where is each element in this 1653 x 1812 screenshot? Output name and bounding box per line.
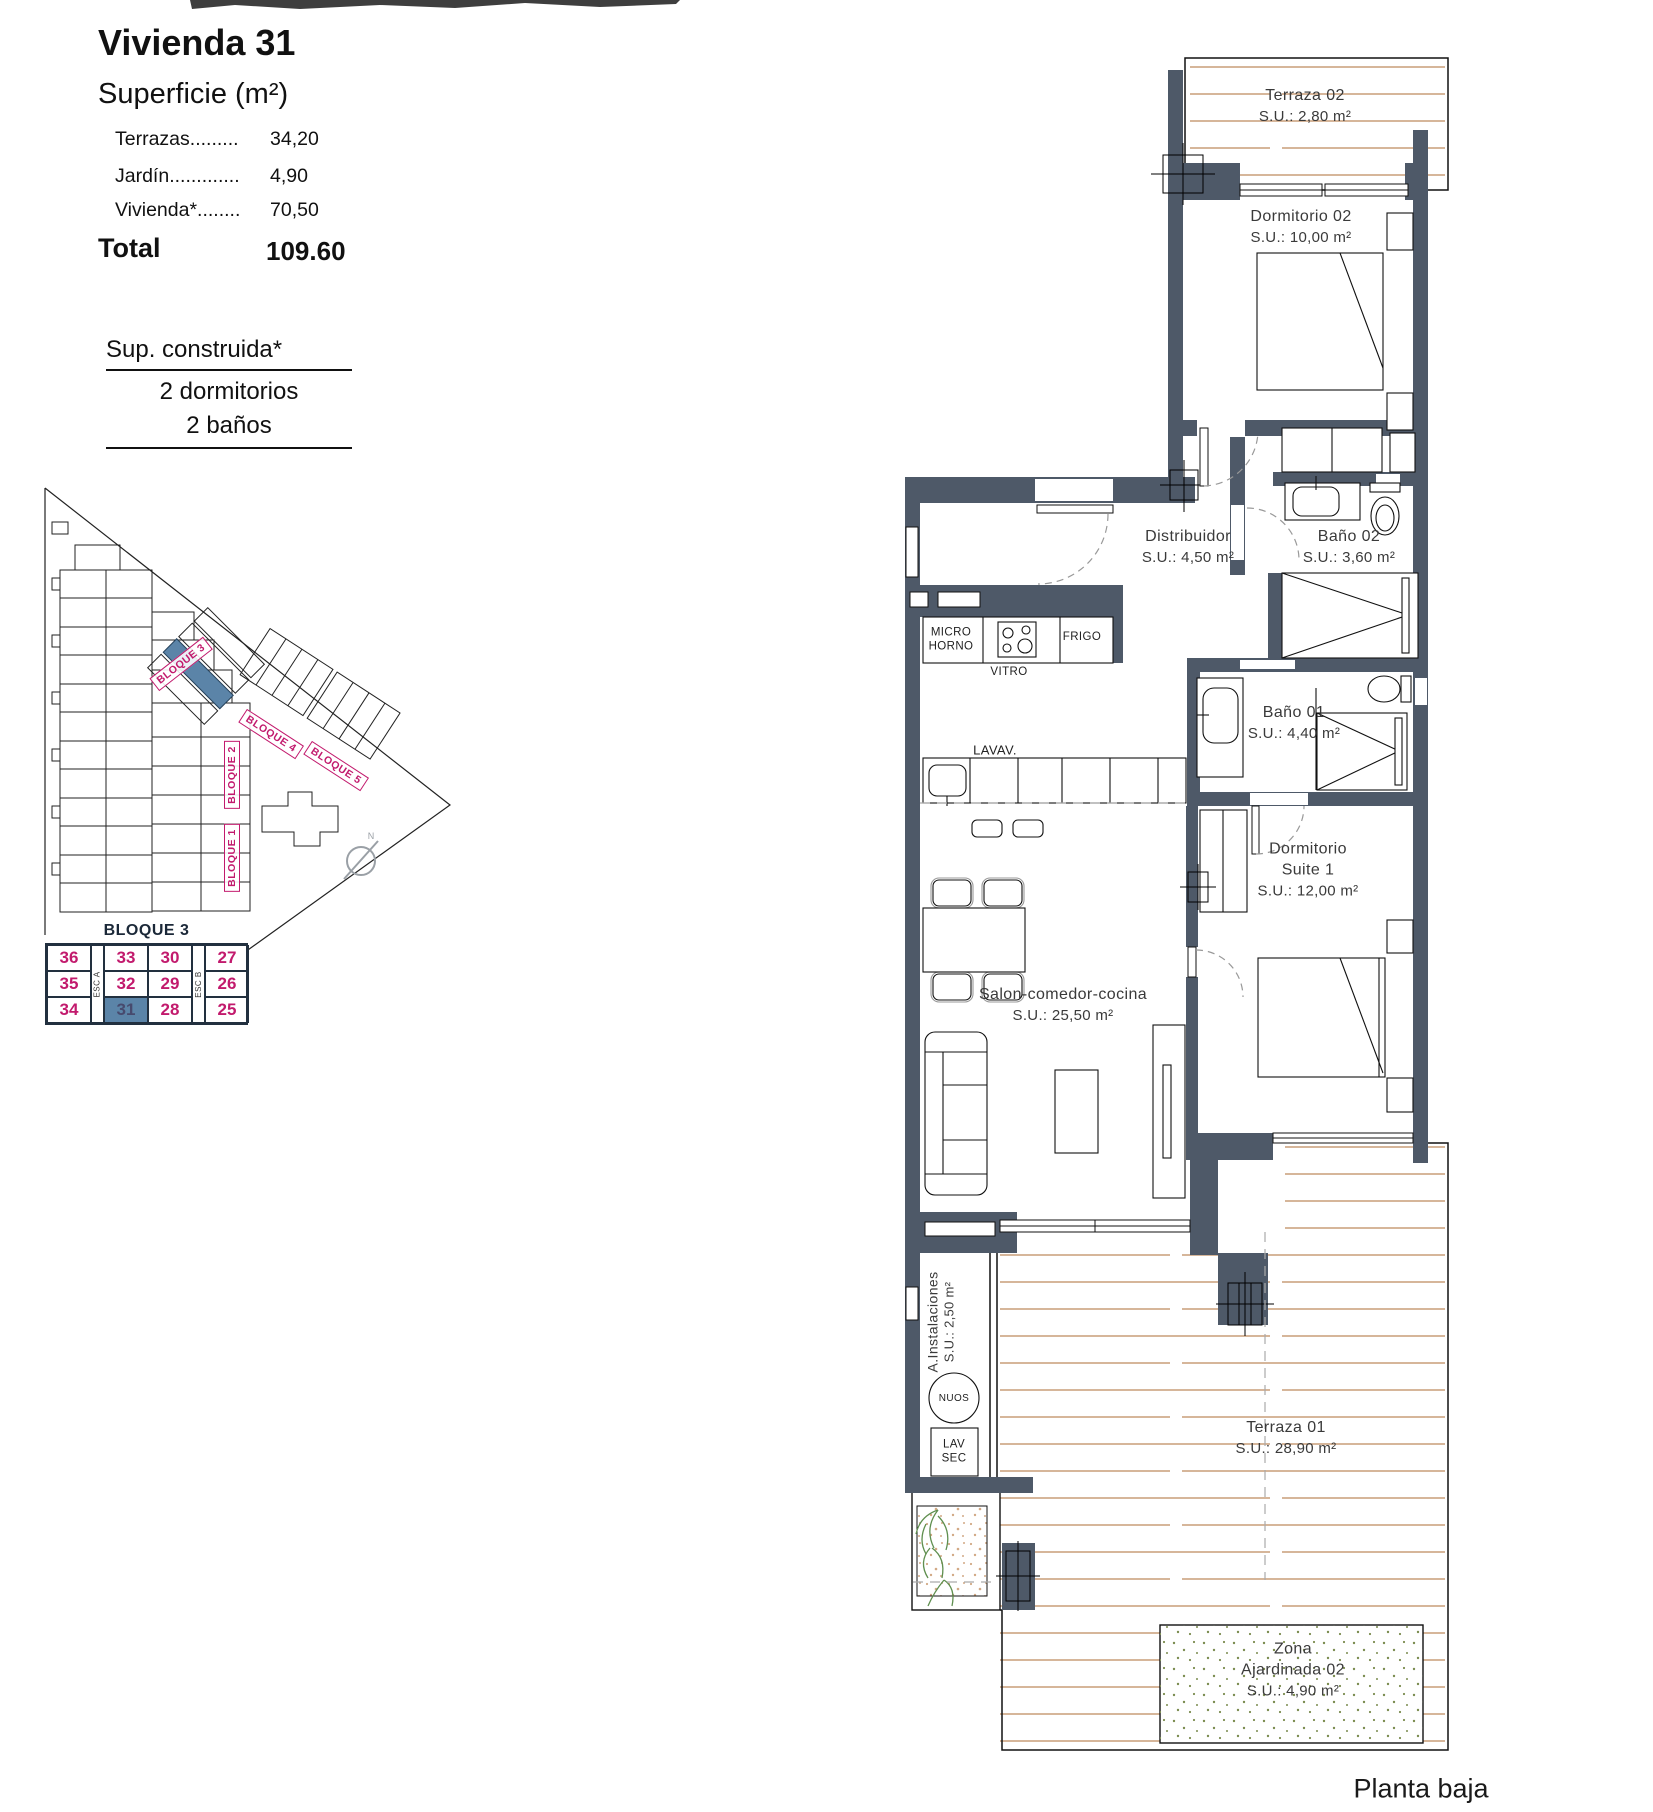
built-surface-block: Sup. construida* 2 dormitorios 2 baños [106, 336, 352, 449]
surface-row: Terrazas......... 34,20 [115, 128, 375, 151]
key-table-title: BLOQUE 3 [45, 922, 248, 940]
room-name: Terraza 01 [1236, 1418, 1337, 1439]
unit-cell: 36 [47, 945, 91, 971]
unit-cell: 26 [205, 971, 249, 997]
room-name: Baño 02 [1303, 527, 1395, 548]
room-area: S.U.: 28,90 m² [1236, 1439, 1337, 1459]
apartment-plan [905, 58, 1448, 1750]
distribuidor-label: Distribuidor S.U.: 4,50 m² [1142, 527, 1234, 567]
rowhouse-strip [52, 570, 152, 912]
room-area: S.U.: 3,60 m² [1303, 548, 1395, 568]
room-area: S.U.: 4,90 m² [1241, 1681, 1345, 1701]
stair-a-label: ESC A [93, 971, 102, 997]
room-name: Distribuidor [1142, 527, 1234, 548]
room-name: Zona [1241, 1639, 1345, 1660]
jardin-label: Zona Ajardinada 02 S.U.: 4,90 m² [1241, 1639, 1345, 1700]
instalaciones-label: A.Instalaciones S.U.: 2,50 m² [923, 1272, 958, 1373]
unit-key-table: BLOQUE 3 36 ESC A 33 30 ESC B 27 35 32 2… [45, 922, 248, 1025]
room-name: Suite 1 [1258, 860, 1359, 881]
key-table-grid: 36 ESC A 33 30 ESC B 27 35 32 29 26 34 3… [45, 943, 248, 1025]
room-name: Ajardinada 02 [1241, 1660, 1345, 1681]
unit-cell: 32 [104, 971, 148, 997]
stair-a-cell: ESC A [91, 945, 104, 1023]
surface-row-value: 4,90 [270, 165, 308, 188]
room-name: Dormitorio 02 [1250, 207, 1351, 228]
scan-edge [190, 0, 680, 9]
unit-cell: 29 [148, 971, 192, 997]
fixture-text: MICRO [929, 626, 974, 640]
water-heater-label: NUOS [939, 1393, 970, 1405]
bano02-label: Baño 02 S.U.: 3,60 m² [1303, 527, 1395, 567]
room-area: S.U.: 10,00 m² [1250, 228, 1351, 248]
unit-cell: 27 [205, 945, 249, 971]
room-name: Dormitorio [1258, 839, 1359, 860]
floor-name: Planta baja [1353, 1774, 1488, 1805]
bano01-label: Baño 01 S.U.: 4,40 m² [1248, 703, 1340, 743]
unit-cell: 34 [47, 997, 91, 1023]
bedrooms-count: 2 dormitorios [106, 378, 352, 406]
unit-cell: 35 [47, 971, 91, 997]
room-area: S.U.: 12,00 m² [1258, 881, 1359, 901]
dishwasher-label: LAVAV. [973, 742, 1017, 757]
unit-cell: 28 [148, 997, 192, 1023]
bloque1-label: BLOQUE 1 [224, 824, 240, 892]
surface-row-value: 70,50 [270, 199, 319, 222]
unit-cell: 30 [148, 945, 192, 971]
surface-row: Jardín............. 4,90 [115, 165, 375, 188]
microwave-oven-label: MICRO HORNO [929, 626, 974, 653]
room-name: Salon-comedor-cocina [979, 985, 1147, 1006]
surface-row-label: Jardín............. [115, 165, 240, 187]
vitro-label: VITRO [990, 666, 1027, 680]
room-area: S.U.: 25,50 m² [979, 1006, 1147, 1026]
planter [912, 1492, 1000, 1610]
unit-cell-highlighted: 31 [104, 997, 148, 1023]
compass-north-label: N [368, 831, 375, 841]
surface-row: Vivienda*........ 70,50 [115, 199, 375, 222]
salon-label: Salon-comedor-cocina S.U.: 25,50 m² [979, 985, 1147, 1025]
unit-cell: 33 [104, 945, 148, 971]
total-label: Total [98, 233, 161, 264]
unit-title: Vivienda 31 [98, 22, 295, 64]
plan-graphics [0, 0, 1653, 1812]
surface-row-label: Vivienda*........ [115, 199, 240, 221]
laundry-label: LAV SEC [942, 1438, 967, 1465]
bathrooms-count: 2 baños [106, 412, 352, 449]
fridge-label: FRIGO [1063, 631, 1101, 645]
room-name: Baño 01 [1248, 703, 1340, 724]
room-name: Terraza 02 [1259, 86, 1351, 107]
floor-plan-sheet: Vivienda 31 Superficie (m²) Terrazas....… [0, 0, 1653, 1812]
room-area: S.U.: 4,40 m² [1248, 724, 1340, 744]
surface-heading: Superficie (m²) [98, 78, 288, 111]
room-area: S.U.: 4,50 m² [1142, 548, 1234, 568]
fixture-text: HORNO [929, 640, 974, 654]
stair-b-label: ESC B [194, 971, 203, 998]
surface-row-value: 34,20 [270, 128, 319, 151]
suite-label: Dormitorio Suite 1 S.U.: 12,00 m² [1258, 839, 1359, 900]
fixture-text: LAV [942, 1438, 967, 1452]
dormitorio02-label: Dormitorio 02 S.U.: 10,00 m² [1250, 207, 1351, 247]
built-heading: Sup. construida* [106, 336, 352, 371]
unit-cell: 25 [205, 997, 249, 1023]
room-area: S.U.: 2,80 m² [1259, 107, 1351, 127]
total-value: 109.60 [266, 236, 346, 267]
room-name: A.Instalaciones [923, 1272, 941, 1373]
fixture-text: SEC [942, 1452, 967, 1466]
terraza02-label: Terraza 02 S.U.: 2,80 m² [1259, 86, 1351, 126]
room-area: S.U.: 2,50 m² [942, 1272, 959, 1373]
terraza01-label: Terraza 01 S.U.: 28,90 m² [1236, 1418, 1337, 1458]
bloque2-label: BLOQUE 2 [224, 741, 240, 809]
surface-row-label: Terrazas......... [115, 128, 239, 150]
stair-b-cell: ESC B [192, 945, 205, 1023]
cross-building [262, 792, 338, 846]
